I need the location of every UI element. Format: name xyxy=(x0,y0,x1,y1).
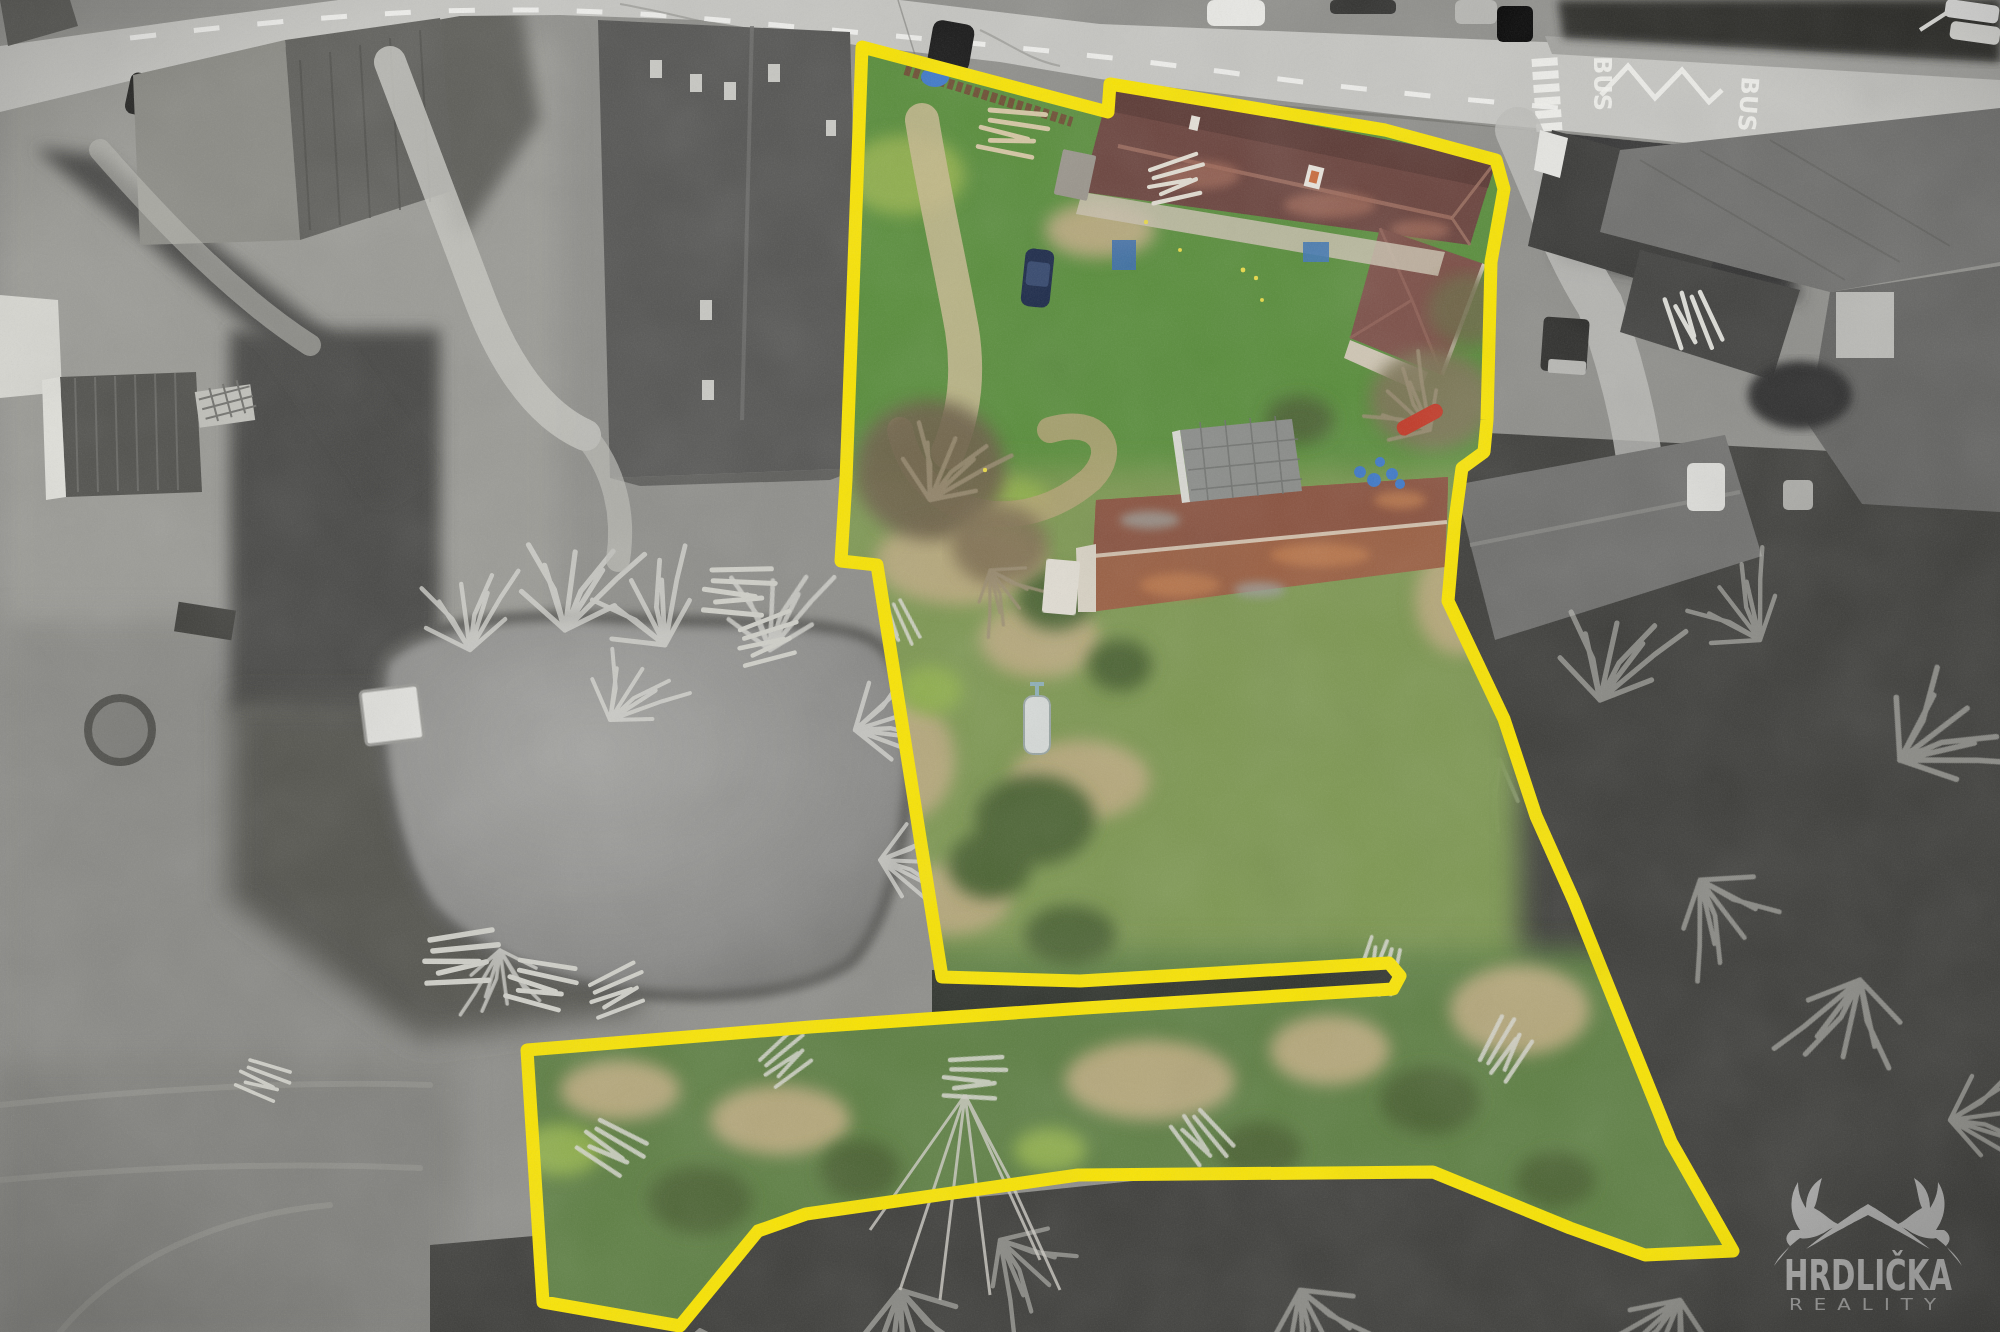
aerial-photo: BUS BUS xyxy=(0,0,2000,1332)
vignette xyxy=(0,0,2000,1332)
aerial-photo-canvas: BUS BUS xyxy=(0,0,2000,1332)
